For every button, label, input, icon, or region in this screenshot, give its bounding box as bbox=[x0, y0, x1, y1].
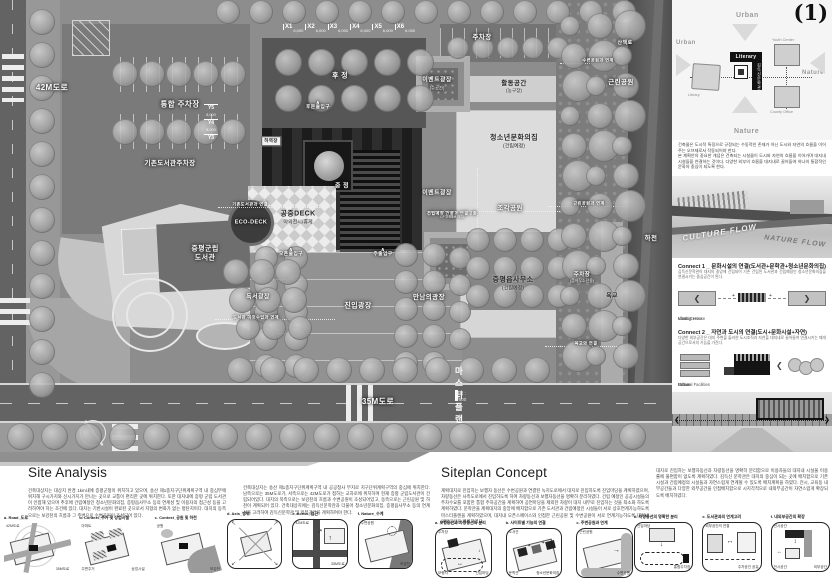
literary-box bbox=[737, 532, 756, 553]
diagram-caption: a. Road_도로 bbox=[4, 515, 71, 521]
grid-x-dim: 6,000 bbox=[383, 28, 393, 33]
plan-label: 증평군립 도서관 bbox=[191, 245, 218, 263]
tree-icon bbox=[7, 423, 34, 450]
tree-icon bbox=[394, 324, 418, 348]
tree-icon bbox=[359, 357, 385, 383]
diagram-caption: c. Context_공원 및 하천 bbox=[155, 515, 222, 521]
connect-2-label: Nature bbox=[678, 382, 691, 387]
plan-label: 근린공원 bbox=[608, 79, 634, 87]
urban-rect bbox=[680, 362, 710, 369]
tree-icon bbox=[493, 228, 517, 252]
grid-x-dim: 6,000 bbox=[316, 28, 326, 33]
grid-x-item: X16,000 bbox=[283, 24, 303, 33]
diagram-inner-label: 청소년문화의집 bbox=[536, 571, 559, 576]
grid-x-item: X66,000 bbox=[395, 24, 415, 33]
site-analysis-diagrams-a-c: a. Road_도로42M도로35M도로b. Context_주거 및 상업시설… bbox=[4, 515, 222, 573]
tree-icon bbox=[109, 423, 136, 450]
plan-label: ECO-DECK bbox=[235, 220, 268, 227]
road-bar bbox=[293, 550, 347, 557]
tree-icon bbox=[613, 253, 639, 279]
site-plan: X16,000X26,000X36,000X46,000X56,000X66,0… bbox=[0, 0, 672, 452]
tree-icon bbox=[29, 42, 55, 68]
connect-1-label: Youth Center bbox=[678, 316, 702, 321]
siteplan-concept-diagrams-d-f: d. 차량동선의 명확한 분리↓진입마당통합주차장e. 도서관과의 연계고려↔외… bbox=[634, 514, 830, 572]
tree-icon bbox=[449, 423, 476, 450]
mini-diagram-park: →근린공원수변공원 bbox=[576, 528, 633, 578]
plan-label: 35M도로 bbox=[362, 397, 394, 407]
tree-icon bbox=[561, 223, 587, 249]
plan-label: 근린공원과 연계 bbox=[573, 200, 604, 205]
park-blob bbox=[161, 529, 173, 538]
plan-label: 기존도서관주차장 bbox=[144, 160, 195, 168]
perspective-rendering-bottom: ❮ ❯ bbox=[672, 392, 832, 458]
tree-icon bbox=[491, 357, 517, 383]
tree-icon bbox=[29, 240, 55, 266]
wing-bar bbox=[804, 530, 812, 557]
dashed-line bbox=[705, 559, 755, 560]
library-box bbox=[707, 534, 723, 553]
plan-label: 증평읍사무소(건립예정) bbox=[492, 276, 533, 291]
diagram-card: b. 사이트별 기능의 연결++도서관청소년문화의집문학관 bbox=[506, 520, 563, 578]
tree-icon bbox=[586, 166, 606, 186]
urban-rect bbox=[680, 354, 710, 361]
grid-y-dim: 8,000 bbox=[204, 113, 218, 117]
county-office-caption: County Office bbox=[770, 110, 793, 114]
crosswalk bbox=[0, 298, 30, 328]
plan-label: 수변공원과 연계 bbox=[582, 57, 613, 62]
arrow-glyph: ↑ bbox=[328, 535, 332, 542]
mini-diagram-flow: ↔↓주차장진입마당보행자 bbox=[435, 528, 492, 578]
tree-icon bbox=[612, 46, 632, 66]
plan-label: 공중DECK야외전시/휴게 bbox=[280, 210, 315, 225]
arrow-left-icon: ❮ bbox=[674, 416, 680, 424]
mini-diagram-water: 수변공원보강천 bbox=[358, 519, 413, 569]
plan-label-sub: (건립예정) bbox=[490, 143, 538, 149]
sidebar-intro-1: 건축물은 도시적 특징으로 규정되는 수동적인 존재가 아닌 도시와 자연의 흐… bbox=[678, 142, 826, 153]
diagram-inner-label: 근린공원 bbox=[579, 530, 592, 535]
cultural-roof-hatch bbox=[734, 354, 770, 361]
diagram-inner-label: 공원 bbox=[157, 524, 164, 529]
pond-ring bbox=[387, 526, 397, 536]
tree-icon bbox=[394, 243, 418, 267]
arrow-glyph: ↘ bbox=[273, 561, 278, 567]
tree-icon bbox=[275, 85, 302, 112]
plan-label: 진입광장 bbox=[344, 303, 371, 312]
parking-box bbox=[649, 528, 675, 542]
divider-band bbox=[0, 452, 430, 462]
tree-icon bbox=[560, 16, 580, 36]
arrow-right-icon: ❯ bbox=[824, 416, 830, 424]
tree-icon bbox=[392, 357, 418, 383]
park-band bbox=[621, 533, 632, 573]
grid-y-label: Y5 bbox=[204, 104, 218, 111]
tree-icon bbox=[561, 133, 587, 159]
nature-flow-label: NATURE FLOW bbox=[764, 234, 827, 249]
diagram-inner-label: 42M도로 bbox=[295, 521, 309, 526]
flow-arrow-left-icon bbox=[810, 52, 825, 74]
tree-icon bbox=[394, 270, 418, 294]
plan-label: ∧후문출입구 bbox=[306, 101, 330, 111]
tree-icon bbox=[449, 301, 471, 323]
mini-diagram-access: ↑↗42M도로35M도로 bbox=[292, 519, 347, 569]
tree-icon bbox=[415, 423, 442, 450]
tree-icon bbox=[561, 43, 587, 69]
tree-icon bbox=[422, 243, 446, 267]
diagram-inner-label: 35M도로 bbox=[56, 567, 70, 572]
tree-icon bbox=[348, 0, 372, 24]
connect-2-title: Connect 2 _ 자연과 도시의 연결(도시+문화시설+자연) bbox=[678, 328, 807, 336]
diagram-caption: c. 주변공원과 연계 bbox=[576, 520, 633, 526]
tree-icon bbox=[279, 423, 306, 450]
tree-icon bbox=[249, 259, 275, 285]
plan-label: 기존도서관과 연결 bbox=[232, 201, 268, 206]
urban-rect bbox=[680, 370, 710, 377]
sidebar-intro-2: 본 계획안의 중요한 개념은 건축되는 시설물이 도시와 자연의 흐름을 이어가… bbox=[678, 153, 826, 170]
site-block bbox=[683, 554, 689, 563]
diagram-inner-label: 보강천 bbox=[400, 562, 410, 567]
cultural-step bbox=[724, 367, 734, 375]
tree-icon bbox=[614, 100, 646, 132]
perspective-rendering-top: CULTURE FLOW NATURE FLOW bbox=[672, 176, 832, 258]
connect-2-section: Connect 2 _ 자연과 도시의 연결(도시+문화시설+자연) 다양한 외… bbox=[678, 328, 826, 388]
plan-label: 독서광장 bbox=[246, 294, 270, 302]
site-block bbox=[29, 545, 38, 551]
diagram-card: d. 차량동선의 명확한 분리↓진입마당통합주차장 bbox=[634, 514, 693, 572]
flow-dotted-line bbox=[676, 420, 828, 421]
diagram-card: e. Acess_접근↑↗42M도로35M도로 bbox=[292, 511, 347, 569]
plan-label: 청소년문화의집(건립예정) bbox=[490, 134, 538, 149]
plan-label-sub: (2F 연결통로 예정) bbox=[427, 216, 477, 220]
tree-icon bbox=[227, 357, 253, 383]
plan-label: 이벤트광장(수공간) bbox=[422, 78, 452, 91]
tree-icon bbox=[522, 37, 544, 59]
diagram-card: f. 내외부공간의 확장↕↔전시공간외부공간전시공간 bbox=[771, 514, 830, 572]
tree-icon bbox=[341, 85, 368, 112]
tree-icon bbox=[275, 49, 302, 76]
plan-label: 하천 bbox=[645, 235, 658, 243]
tree-icon bbox=[517, 423, 544, 450]
arrow-glyph: ↕ bbox=[794, 539, 797, 545]
grid-x-item: X56,000 bbox=[372, 24, 392, 33]
tree-icon bbox=[216, 0, 240, 24]
tree-icon bbox=[587, 193, 613, 219]
entrance-chevron-icon: ∧ bbox=[306, 101, 330, 105]
plan-label: 육교 bbox=[606, 293, 618, 301]
diagram-card: e. 도서관과의 연계고려↔외부공간의 연결주차공간 공유 bbox=[702, 514, 761, 572]
tree-icon bbox=[520, 228, 544, 252]
tree-icon bbox=[374, 85, 401, 112]
diagram-caption: e. Acess_접근 bbox=[292, 511, 347, 517]
library-caption: Library bbox=[688, 93, 700, 97]
highlighted-building-outline bbox=[756, 398, 824, 420]
diagram-inner-label: 전시공간 bbox=[774, 524, 787, 529]
diagram-inner-label: 보강천 bbox=[210, 567, 220, 572]
plan-label: 중 정 bbox=[335, 183, 349, 191]
diagram-inner-label: 외부공간의 연결 bbox=[705, 524, 729, 529]
nature-bottom-label: Nature bbox=[734, 128, 759, 135]
arrow-left-icon: ❮ bbox=[776, 362, 783, 370]
tree-icon bbox=[143, 423, 170, 450]
plus-mark: + bbox=[732, 293, 735, 299]
tree-icon bbox=[612, 316, 632, 336]
diagram-inner-label: 42M도로 bbox=[6, 524, 20, 529]
literary-block: Literary bbox=[730, 52, 762, 62]
tree-icon bbox=[29, 372, 55, 398]
tree-icon bbox=[560, 286, 580, 306]
plan-label: 하역장 bbox=[261, 136, 281, 146]
diagram-inner-label: 주변주거 bbox=[81, 567, 94, 572]
tree-icon bbox=[211, 423, 238, 450]
grid-x-label: X3 bbox=[328, 24, 337, 30]
diagram-inner-label: 통합주차장 bbox=[674, 565, 691, 570]
site-analysis-diagrams-d-f: d. Axis_방위↗↖↙↘e. Acess_접근↑↗42M도로35M도로f. … bbox=[227, 511, 413, 569]
diagram-caption: f. 내외부공간의 확장 bbox=[771, 514, 830, 520]
tree-icon bbox=[585, 423, 612, 450]
grid-x-dim: 6,000 bbox=[405, 28, 415, 33]
plan-label: 만남의광장 bbox=[413, 294, 445, 302]
flow-arrow-up-icon bbox=[732, 96, 758, 113]
tree-icon bbox=[249, 0, 273, 24]
tree-icon bbox=[422, 270, 446, 294]
grid-x-item: X46,000 bbox=[350, 24, 370, 33]
arrow-glyph: ↗ bbox=[317, 529, 322, 535]
grid-axis-y: Y58,000Y48,000Y3 bbox=[204, 104, 218, 141]
plan-label-sub: (건립예정) bbox=[492, 285, 533, 291]
mini-diagram-expand: ↕↔전시공간외부공간전시공간 bbox=[771, 522, 830, 572]
tree-icon bbox=[293, 357, 319, 383]
plan-label: 조각공원 bbox=[497, 205, 523, 213]
tree-icon bbox=[166, 119, 192, 145]
masterplan-scale: 축척 : 1/500 bbox=[455, 391, 466, 402]
literary-courtyard bbox=[734, 65, 748, 79]
grid-axis-x: X16,000X26,000X36,000X46,000X56,000X66,0… bbox=[283, 24, 415, 33]
arrow-glyph: ↙ bbox=[231, 561, 236, 567]
mini-diagram-separate: ↓진입마당통합주차장 bbox=[634, 522, 693, 572]
tree-icon bbox=[245, 423, 272, 450]
tree-icon bbox=[466, 228, 490, 252]
urban-top-label: Urban bbox=[736, 12, 759, 19]
tree-icon bbox=[220, 61, 246, 87]
site-analysis-title: Site Analysis bbox=[28, 465, 107, 480]
tree-icon bbox=[282, 0, 306, 24]
tree-icon bbox=[315, 0, 339, 24]
tree-icon bbox=[347, 423, 374, 450]
literary-house-hatch bbox=[738, 293, 766, 302]
plan-label-sub: (농구장) bbox=[501, 88, 527, 94]
tree-icon bbox=[29, 273, 55, 299]
tree-icon bbox=[29, 108, 55, 134]
tree-icon bbox=[619, 423, 646, 450]
arrow-glyph: ↔ bbox=[777, 550, 782, 555]
diagram-card: a. Road_도로42M도로35M도로 bbox=[4, 515, 71, 573]
tree-icon bbox=[381, 0, 405, 24]
diagram-card: d. Axis_방위↗↖↙↘ bbox=[227, 511, 282, 569]
mini-diagram-link: ↔외부공간의 연결주차공간 공유 bbox=[702, 522, 761, 572]
diagram-inner-label: 수변공원 bbox=[617, 571, 630, 576]
diagram-inner-label: 주차장 bbox=[438, 530, 448, 535]
tree-icon bbox=[560, 196, 580, 216]
tree-icon bbox=[613, 343, 639, 369]
cultural-mass bbox=[734, 361, 770, 375]
crosswalk bbox=[2, 54, 24, 102]
arrow-glyph: ↓ bbox=[660, 542, 663, 548]
diagram-inner-label: 수변공원 bbox=[361, 521, 374, 526]
tree-icon bbox=[381, 423, 408, 450]
arrow-glyph: + bbox=[542, 541, 545, 546]
grid-x-dim: 6,000 bbox=[360, 28, 370, 33]
tree-icon bbox=[586, 76, 606, 96]
diagram-inner-label: 도서관 bbox=[509, 530, 519, 535]
tree-icon bbox=[374, 49, 401, 76]
diagram-caption: e. 도서관과의 연계고려 bbox=[702, 514, 761, 520]
connect-2-desc: 다양한 외부공간은 대지 주변을 둘러싼 도시조직과 자연을 대지내로 끌어들여… bbox=[678, 336, 826, 346]
diagram-caption: d. Axis_방위 bbox=[227, 511, 282, 517]
diagram-inner-label: 진입마당 bbox=[475, 571, 488, 576]
tree-icon bbox=[483, 423, 510, 450]
road-bar bbox=[313, 520, 320, 569]
diagram-card: a. 보행동선과 차량동선의 분리↔↓주차장진입마당보행자 bbox=[435, 520, 492, 578]
pedestrian-loop bbox=[640, 552, 684, 565]
youth-center-caption: Youth Center bbox=[772, 38, 794, 42]
tree-icon bbox=[29, 207, 55, 233]
youth-center-box: ❯ bbox=[788, 291, 826, 306]
arrow-glyph: ↓ bbox=[478, 549, 481, 554]
tree-icon bbox=[223, 259, 249, 285]
tree-icon bbox=[422, 324, 446, 348]
entrance-chevron-icon: ∧ bbox=[279, 248, 303, 252]
diagram-card: c. 주변공원과 연계→근린공원수변공원 bbox=[576, 520, 633, 578]
tree-icon bbox=[466, 256, 490, 280]
road-35m bbox=[0, 383, 672, 423]
diagram-inner-label: 문학관 bbox=[509, 571, 519, 576]
diagram-inner-label: 주차공간 공유 bbox=[738, 565, 759, 570]
plan-label: ∧오픈출입구 bbox=[279, 248, 303, 258]
tree-icon bbox=[587, 13, 613, 39]
nature-circle bbox=[810, 358, 824, 372]
plan-label: 통합 주차장 bbox=[161, 99, 200, 108]
connect-1-section: Connect 1 _ 문화시설의 연결(도서관+문학관+청소년문화의집) 김득… bbox=[678, 262, 826, 324]
tree-icon bbox=[497, 37, 519, 59]
connect-1-title: Connect 1 _ 문화시설의 연결(도서관+문학관+청소년문화의집) bbox=[678, 262, 826, 270]
tree-icon bbox=[407, 49, 434, 76]
plan-label: 산책로 bbox=[617, 40, 632, 46]
building-mass bbox=[790, 200, 824, 214]
tree-icon bbox=[193, 61, 219, 87]
arrow-glyph: → bbox=[613, 547, 620, 554]
grid-x-label: X2 bbox=[305, 24, 314, 30]
tree-icon bbox=[551, 423, 578, 450]
bottom-strip: Site Analysis Siteplan Concept 건축대상지는 대상… bbox=[0, 452, 832, 586]
plan-label: 주차장(읍사무소전용) bbox=[570, 272, 594, 284]
tree-icon bbox=[326, 357, 352, 383]
mini-diagram-connect: ++도서관청소년문화의집문학관 bbox=[506, 528, 563, 578]
tree-icon bbox=[612, 226, 632, 246]
plus-mark: + bbox=[769, 293, 772, 299]
tree-icon bbox=[586, 346, 606, 366]
plan-label-sub: 야외전시/휴게 bbox=[280, 219, 315, 225]
court-box bbox=[785, 548, 800, 559]
plan-label: ∧주출입구 bbox=[373, 248, 392, 258]
siteplan-concept-paragraph-2: 대지로 진입하는 보행자동선과 차량동선을 명확히 분리함으로 이용자들의 대지… bbox=[656, 468, 828, 499]
grid-x-label: X1 bbox=[283, 24, 292, 30]
arrow-glyph: ↔ bbox=[457, 561, 463, 567]
mini-diagram-road: 42M도로35M도로 bbox=[4, 523, 71, 573]
grid-x-dim: 6,000 bbox=[338, 28, 348, 33]
literary-block-kr: 김득신문학관 bbox=[752, 62, 762, 90]
tree-icon bbox=[587, 103, 613, 129]
tree-icon bbox=[308, 49, 335, 76]
tree-icon bbox=[513, 0, 537, 24]
county-office-block bbox=[774, 86, 800, 108]
tree-icon bbox=[220, 119, 246, 145]
diagram-inner-label: 상업시설 bbox=[131, 567, 144, 572]
tree-icon bbox=[449, 328, 471, 350]
diagram-inner-label: 전시공간 bbox=[774, 565, 787, 570]
diagram-caption: d. 차량동선의 명확한 분리 bbox=[634, 514, 693, 520]
youth-center-block bbox=[774, 44, 800, 66]
diagram-card: b. Context_주거 및 상업시설아파트상업시설주변주거 bbox=[79, 515, 146, 573]
plan-label: 42M도로 bbox=[36, 83, 68, 93]
tree-icon bbox=[466, 284, 490, 308]
plan-label-sub: (읍사무소전용) bbox=[570, 279, 594, 284]
connection-dotted-line bbox=[218, 207, 330, 208]
diagram-inner-label: 외부공간 bbox=[814, 565, 827, 570]
connect-2-diagram: ❮ bbox=[678, 348, 826, 382]
tree-icon bbox=[177, 423, 204, 450]
entrance-chevron-icon: ∧ bbox=[373, 248, 392, 252]
tree-icon bbox=[414, 0, 438, 24]
plan-label: 주차장 bbox=[472, 34, 491, 42]
plan-label: 육교와 연결 bbox=[575, 340, 598, 345]
tree-icon bbox=[614, 10, 646, 42]
tree-icon bbox=[139, 119, 165, 145]
tree-icon bbox=[447, 37, 469, 59]
grid-x-item: X26,000 bbox=[305, 24, 325, 33]
amphitheater-arc bbox=[126, 292, 174, 338]
connect-1-desc: 김득신문학관이 대지의 중앙에 건립되어 기존 건립된 도서관과 건립예정인 청… bbox=[678, 270, 826, 280]
tree-icon bbox=[281, 287, 307, 313]
diagram-caption: b. Context_주거 및 상업시설 bbox=[79, 515, 146, 521]
tree-icon bbox=[447, 0, 471, 24]
plan-label-sub: (수공간) bbox=[422, 85, 452, 90]
tree-icon bbox=[524, 357, 550, 383]
plan-label: 이벤트광장 bbox=[422, 190, 452, 198]
tree-icon bbox=[561, 313, 587, 339]
tree-icon bbox=[166, 61, 192, 87]
tree-icon bbox=[425, 357, 451, 383]
diagram-card: c. Context_공원 및 하천공원보강천 bbox=[155, 515, 222, 573]
mechanical-parking bbox=[72, 20, 110, 56]
diagram-caption: a. 보행동선과 차량동선의 분리 bbox=[435, 520, 492, 526]
plan-label: 건립예정 건물과 연결 2층(2F 연결통로 예정) bbox=[427, 210, 477, 219]
grid-y-label: Y3 bbox=[204, 134, 218, 141]
siteplan-concept-diagrams-a-c: a. 보행동선과 차량동선의 분리↔↓주차장진입마당보행자b. 사이트별 기능의… bbox=[435, 520, 633, 578]
arrow-glyph: + bbox=[528, 544, 531, 549]
tree-icon bbox=[480, 0, 504, 24]
tree-icon bbox=[612, 136, 632, 156]
presentation-board: X16,000X26,000X36,000X46,000X56,000X66,0… bbox=[0, 0, 832, 586]
plan-label: 도서관 야외수업과 연계 bbox=[233, 314, 279, 319]
diagram-inner-label: 진입마당 bbox=[637, 524, 650, 529]
mini-diagram-axis: ↗↖↙↘ bbox=[227, 519, 282, 569]
diagram-inner-label: 35M도로 bbox=[331, 562, 345, 567]
tree-icon bbox=[614, 280, 646, 312]
tree-icon bbox=[614, 190, 646, 222]
sidebar: (1) Urban Urban Nature Nature Library Li… bbox=[672, 0, 832, 460]
tree-icon bbox=[560, 106, 580, 126]
tree-icon bbox=[29, 9, 55, 35]
grid-y-label: Y4 bbox=[204, 119, 218, 126]
